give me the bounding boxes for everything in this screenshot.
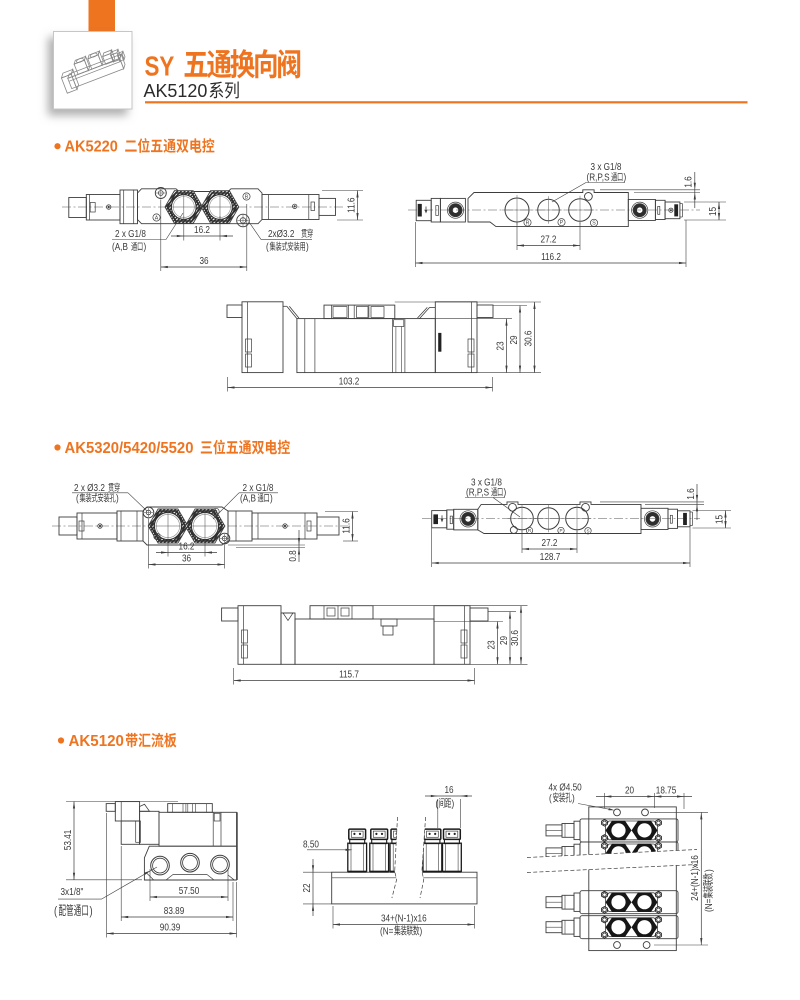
- svg-text:27.2: 27.2: [541, 232, 557, 244]
- svg-text:8.50: 8.50: [303, 837, 319, 849]
- svg-text:R: R: [526, 220, 530, 226]
- svg-text:83.89: 83.89: [164, 904, 184, 916]
- svg-text:S: S: [592, 221, 596, 227]
- svg-text:S: S: [586, 528, 589, 533]
- svg-text:): ): [572, 791, 575, 803]
- svg-text:30.6: 30.6: [521, 331, 533, 347]
- svg-text:2xØ3.2: 2xØ3.2: [268, 227, 294, 239]
- svg-text:(: (: [549, 791, 552, 803]
- svg-text:11.6: 11.6: [344, 198, 356, 213]
- svg-text:): ): [116, 491, 119, 503]
- svg-text:103.2: 103.2: [339, 374, 359, 386]
- svg-text:): ): [144, 240, 147, 252]
- svg-text:P: P: [559, 528, 562, 533]
- svg-text:116.2: 116.2: [541, 250, 561, 262]
- svg-text:18.75: 18.75: [656, 783, 676, 795]
- svg-text:16.2: 16.2: [179, 539, 195, 551]
- svg-text:(N=: (N=: [702, 898, 714, 912]
- svg-text:B: B: [214, 509, 217, 514]
- svg-text:90.39: 90.39: [160, 920, 180, 932]
- svg-text:53.41: 53.41: [61, 830, 73, 850]
- svg-text:SY: SY: [145, 51, 175, 82]
- svg-text:(: (: [266, 240, 269, 252]
- svg-text:11.6: 11.6: [339, 518, 351, 533]
- svg-text:2 x G1/8: 2 x G1/8: [115, 227, 146, 239]
- svg-text:16: 16: [444, 783, 453, 795]
- svg-text:A: A: [155, 215, 159, 221]
- svg-text:): ): [504, 485, 507, 497]
- svg-text:(A,B: (A,B: [112, 240, 128, 252]
- svg-text:30.6: 30.6: [508, 630, 520, 646]
- svg-text:15: 15: [712, 515, 724, 524]
- svg-text:27.2: 27.2: [542, 536, 558, 548]
- svg-text:): ): [270, 491, 273, 503]
- svg-text:34+(N-1)x16: 34+(N-1)x16: [381, 911, 427, 923]
- svg-text:): ): [420, 924, 423, 936]
- svg-text:(: (: [436, 797, 439, 809]
- svg-text:): ): [306, 240, 309, 252]
- svg-text:AK5120: AK5120: [144, 81, 208, 101]
- svg-text:(: (: [76, 491, 79, 503]
- svg-text:): ): [452, 797, 455, 809]
- svg-text:): ): [702, 869, 714, 872]
- svg-text:115.7: 115.7: [339, 667, 359, 679]
- svg-text:128.7: 128.7: [540, 550, 560, 562]
- svg-text:23: 23: [484, 640, 496, 649]
- svg-text:1.6: 1.6: [681, 176, 693, 187]
- svg-text:B: B: [245, 194, 249, 200]
- svg-text:(N=: (N=: [380, 924, 394, 936]
- svg-text:36: 36: [199, 254, 208, 266]
- svg-text:3x1/8": 3x1/8": [61, 885, 84, 897]
- svg-text:23: 23: [493, 341, 505, 350]
- svg-text:AK5220: AK5220: [65, 138, 118, 156]
- svg-text:AK5120: AK5120: [69, 733, 125, 750]
- svg-text:57.50: 57.50: [179, 884, 199, 896]
- svg-text:R: R: [528, 528, 532, 533]
- svg-text:4x Ø4.50: 4x Ø4.50: [549, 780, 582, 792]
- svg-text:20: 20: [625, 783, 634, 795]
- svg-text:22: 22: [300, 883, 312, 892]
- svg-text:(R,P,S: (R,P,S: [466, 485, 489, 497]
- svg-text:AK5320/5420/5520: AK5320/5420/5520: [65, 440, 194, 458]
- svg-text:(A,B: (A,B: [240, 491, 256, 503]
- svg-text:P: P: [560, 220, 564, 226]
- svg-text:24+(N-1)x16: 24+(N-1)x16: [688, 855, 700, 901]
- svg-text:29: 29: [507, 335, 519, 344]
- svg-text:(: (: [54, 905, 57, 918]
- svg-text:36: 36: [182, 551, 191, 563]
- svg-text:15: 15: [706, 207, 718, 216]
- svg-text:1.6: 1.6: [684, 488, 696, 499]
- svg-text:0.8: 0.8: [286, 550, 298, 561]
- svg-text:(R,P,S: (R,P,S: [587, 170, 610, 182]
- svg-text:): ): [90, 905, 93, 918]
- svg-text:16.2: 16.2: [194, 223, 210, 235]
- svg-text:): ): [624, 170, 627, 182]
